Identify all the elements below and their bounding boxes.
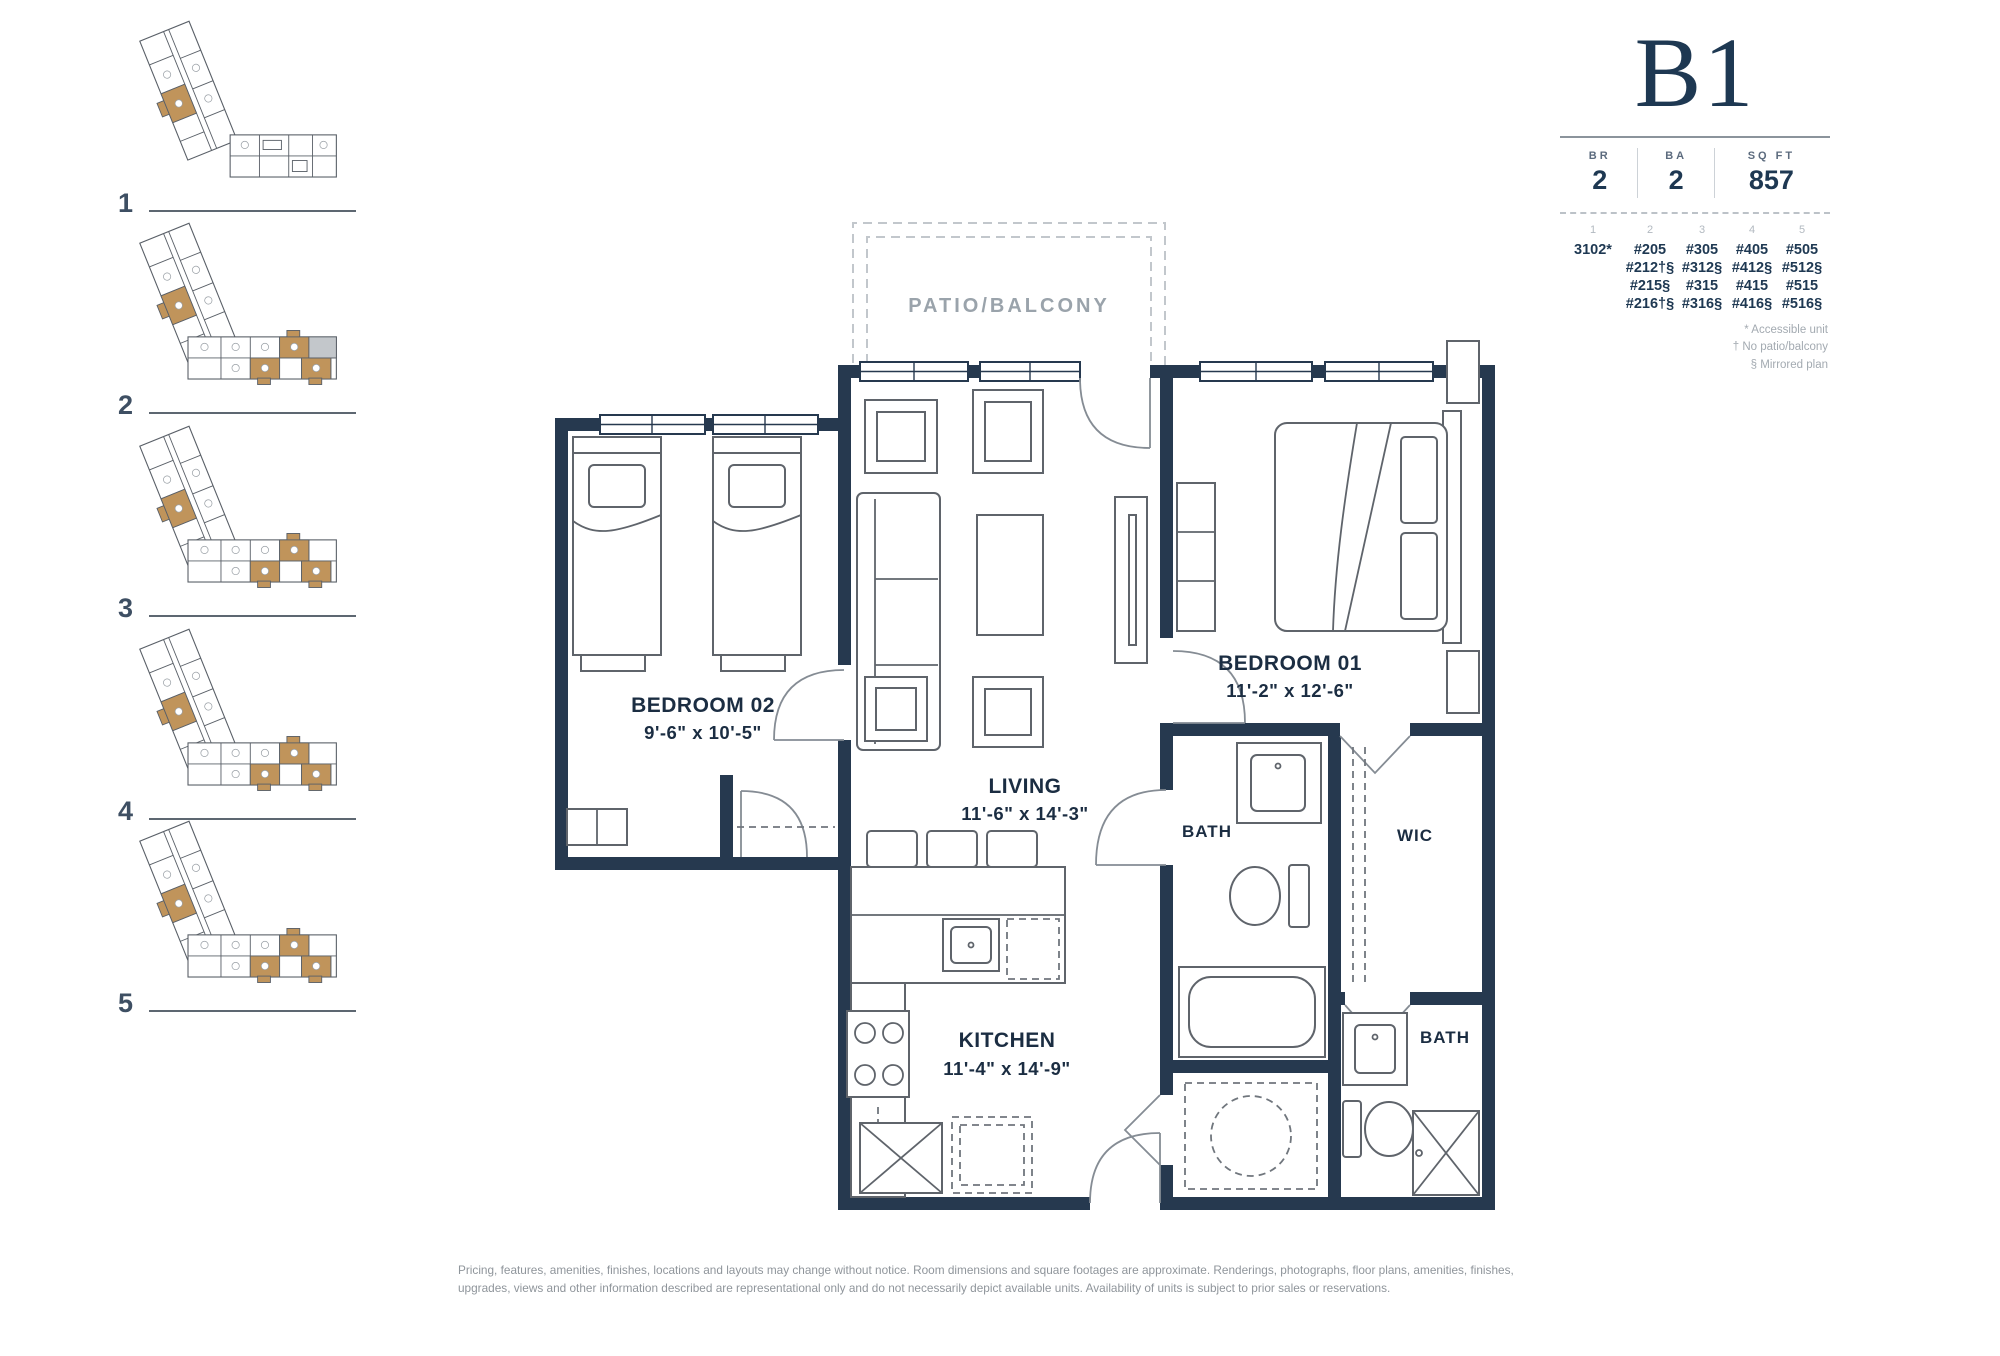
unit-floor-plan: PATIO/BALCONY — [545, 215, 1555, 1225]
unit-number: #212†§ — [1625, 260, 1675, 276]
stat-ba-label: BA — [1638, 150, 1713, 162]
patio-balcony: PATIO/BALCONY — [853, 223, 1165, 378]
bar-stool — [987, 831, 1037, 867]
toilet-tank — [1343, 1101, 1361, 1157]
unit-number: #516§ — [1779, 296, 1825, 312]
bar-stool — [927, 831, 977, 867]
footnote-no-patio: † No patio/balcony — [1556, 339, 1828, 356]
key-plan-floor-4: 4 — [118, 622, 356, 825]
unit-number: #305 — [1679, 242, 1725, 258]
stat-br-label: BR — [1562, 150, 1637, 162]
refrigerator — [952, 1117, 1032, 1193]
dashed-divider — [1560, 212, 1830, 214]
unit-number: #416§ — [1729, 296, 1775, 312]
wic-door — [1340, 736, 1410, 773]
key-plan-floor-2: 2 — [118, 216, 356, 419]
key-plan-1-drawing — [118, 14, 356, 188]
laundry-door — [1125, 1095, 1160, 1165]
kitchen-dims: 11'-4" x 14'-9" — [943, 1058, 1070, 1079]
coffee-table — [977, 515, 1043, 635]
key-plan-divider — [149, 1010, 356, 1012]
bath-main-label: BATH — [1182, 822, 1232, 841]
floor-5-units: #505 #512§ #515 #516§ — [1779, 242, 1825, 312]
floor-header-2: 2 — [1625, 224, 1675, 242]
toilet-tank — [1289, 865, 1309, 927]
patio-door — [1080, 378, 1150, 448]
stat-br: BR 2 — [1562, 148, 1637, 198]
floor-1-units: 3102* — [1565, 242, 1621, 312]
unit-number: 3102* — [1565, 242, 1621, 258]
unit-name: B1 — [1556, 22, 1834, 124]
legal-disclaimer: Pricing, features, amenities, finishes, … — [458, 1262, 1552, 1297]
bedroom01-dims: 11'-2" x 12'-6" — [1226, 680, 1353, 701]
living-label: LIVING — [988, 775, 1061, 798]
kitchen-label: KITCHEN — [959, 1029, 1056, 1052]
key-plan-divider — [149, 412, 356, 414]
bedroom02-door — [774, 670, 844, 740]
unit-number: #205 — [1625, 242, 1675, 258]
floor-header-4: 4 — [1729, 224, 1775, 242]
key-plan-floor-label: 2 — [118, 392, 133, 419]
key-plan-floor-1: 1 — [118, 14, 356, 217]
unit-number: #505 — [1779, 242, 1825, 258]
toilet — [1230, 867, 1280, 925]
floor-2-units: #205 #212†§ #215§ #216†§ — [1625, 242, 1675, 312]
unit-number: #512§ — [1779, 260, 1825, 276]
dresser — [1177, 483, 1215, 631]
bedroom01-label: BEDROOM 01 — [1218, 652, 1362, 675]
key-plan-4-drawing — [118, 622, 356, 796]
key-plan-floor-label: 3 — [118, 595, 133, 622]
key-plan-divider — [149, 210, 356, 212]
unit-stats: BR 2 BA 2 SQ FT 857 — [1556, 138, 1834, 200]
footnote-mirrored: § Mirrored plan — [1556, 357, 1828, 374]
floor-plan-sheet: 1 2 3 4 5 P — [0, 0, 2000, 1356]
key-plan-2-drawing — [118, 216, 356, 390]
bath-main-door — [1096, 790, 1166, 865]
key-plan-floor-5: 5 — [118, 814, 356, 1017]
kitchen-furniture — [847, 831, 1065, 1197]
unit-number: #316§ — [1679, 296, 1725, 312]
unit-number: #216†§ — [1625, 296, 1675, 312]
bedroom02-closet-door — [741, 791, 807, 857]
toilet — [1365, 1102, 1413, 1156]
footnote-accessible: * Accessible unit — [1556, 322, 1828, 339]
bedroom02-label: BEDROOM 02 — [631, 694, 775, 717]
bath-main-fixtures — [1179, 743, 1325, 1057]
washer-dryer — [1185, 1083, 1317, 1189]
stat-sqft: SQ FT 857 — [1714, 148, 1828, 198]
stat-sqft-value: 857 — [1715, 165, 1828, 196]
unit-number: #312§ — [1679, 260, 1725, 276]
patio-label: PATIO/BALCONY — [908, 295, 1110, 317]
nightstand — [1447, 341, 1479, 403]
key-plan-divider — [149, 615, 356, 617]
stat-ba-value: 2 — [1638, 165, 1713, 196]
floor-header-5: 5 — [1779, 224, 1825, 242]
key-plan-floor-label: 5 — [118, 990, 133, 1017]
key-plan-3-drawing — [118, 419, 356, 593]
stat-br-value: 2 — [1562, 165, 1637, 196]
range — [847, 1011, 909, 1097]
bath-second-label: BATH — [1420, 1028, 1470, 1047]
footnotes: * Accessible unit † No patio/balcony § M… — [1556, 322, 1834, 374]
bedroom02-furniture — [567, 437, 835, 845]
stat-ba: BA 2 — [1637, 148, 1713, 198]
floor-4-units: #405 #412§ #415 #416§ — [1729, 242, 1775, 312]
availability-table: 1 2 3 4 5 3102* #205 #212†§ #215§ #216†§… — [1556, 224, 1834, 312]
unit-number: #405 — [1729, 242, 1775, 258]
living-dims: 11'-6" x 14'-3" — [961, 803, 1088, 824]
unit-number: #415 — [1729, 278, 1775, 294]
wic-fixtures — [1353, 747, 1365, 985]
key-plan-floor-3: 3 — [118, 419, 356, 622]
laundry-closet — [1185, 1083, 1317, 1189]
unit-number: #412§ — [1729, 260, 1775, 276]
sink — [1355, 1025, 1395, 1073]
entry-door — [1090, 1133, 1160, 1203]
floor-header-1: 1 — [1565, 224, 1621, 242]
unit-number: #215§ — [1625, 278, 1675, 294]
key-plan-floor-label: 1 — [118, 190, 133, 217]
key-plan-5-drawing — [118, 814, 356, 988]
bar-stool — [867, 831, 917, 867]
unit-number: #315 — [1679, 278, 1725, 294]
living-furniture — [857, 390, 1147, 750]
floor-3-units: #305 #312§ #315 #316§ — [1679, 242, 1725, 312]
floor-header-3: 3 — [1679, 224, 1725, 242]
wic-label: WIC — [1397, 826, 1433, 845]
unit-number: #515 — [1779, 278, 1825, 294]
stat-sqft-label: SQ FT — [1715, 150, 1828, 162]
bedroom02-dims: 9'-6" x 10'-5" — [644, 722, 762, 743]
nightstand — [1447, 651, 1479, 713]
unit-info-panel: B1 BR 2 BA 2 SQ FT 857 1 2 3 4 5 3102* — [1556, 22, 1834, 374]
